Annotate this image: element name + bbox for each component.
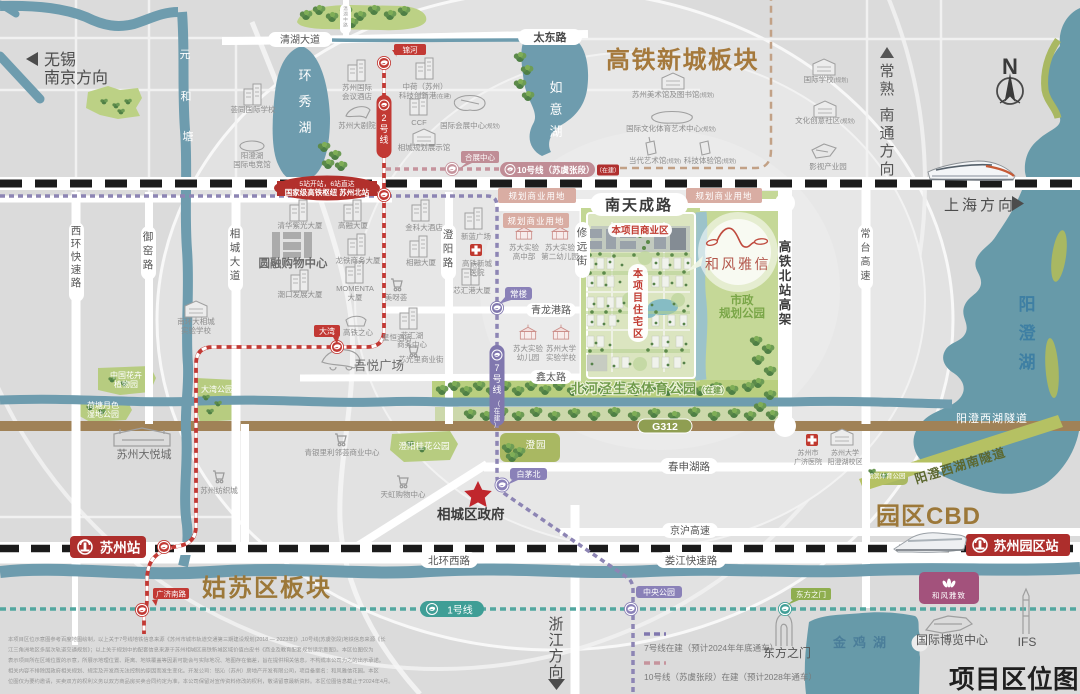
svg-text:阳澄湖: 阳澄湖 [1019,295,1037,372]
svg-text:东方之门: 东方之门 [796,589,826,599]
svg-text:姑苏区板块: 姑苏区板块 [202,575,332,602]
svg-text:苏州站: 苏州站 [100,540,141,556]
svg-text:清华紫光大厦: 清华紫光大厦 [278,220,323,230]
svg-text:和风雅致: 和风雅致 [932,590,966,600]
svg-text:金鸡湖: 金鸡湖 [832,635,893,650]
svg-text:高铁新城板块: 高铁新城板块 [606,46,759,74]
svg-text:京沪高速: 京沪高速 [670,524,710,537]
svg-text:南京方向: 南京方向 [44,69,108,87]
svg-text:园区CBD: 园区CBD [876,503,981,530]
svg-text:苏大实验第二幼儿园: 苏大实验第二幼儿园 [541,242,579,261]
svg-text:高融大厦: 高融大厦 [338,220,368,230]
svg-text:中国花卉植物园: 中国花卉植物园 [110,370,142,389]
svg-text:吾悦广场: 吾悦广场 [354,359,404,373]
svg-text:位图仅为要约邀请，买卖双方的权利义务以双方商品房买卖合同约定: 位图仅为要约邀请，买卖双方的权利义务以双方商品房买卖合同约定为准，本公司保留对宣… [8,677,394,685]
svg-text:清湖大道: 清湖大道 [280,33,320,46]
svg-text:北环西路: 北环西路 [428,554,470,567]
svg-text:相融大厦: 相融大厦 [406,257,436,267]
svg-text:荷塘月色湿地公园: 荷塘月色湿地公园 [87,400,119,419]
svg-text:相城规划展示馆: 相城规划展示馆 [398,142,451,152]
svg-text:规划商业用地: 规划商业用地 [508,191,565,201]
svg-text:太东路: 太东路 [533,30,568,44]
svg-text:影视产业园: 影视产业园 [809,161,847,171]
svg-text:澄阳路: 澄阳路 [443,228,454,269]
svg-text:表示项目所在区域位置的示意，所展示地理位置、距离、地铁覆盖等: 表示项目所在区域位置的示意，所展示地理位置、距离、地铁覆盖等因素可能会与实际地况… [8,656,384,664]
svg-text:5站开站，6站直达: 5站开站，6站直达 [299,179,354,188]
svg-text:10号线（苏虞张段）: 10号线（苏虞张段） [517,165,594,175]
svg-text:1号线: 1号线 [447,604,473,617]
svg-text:常楼: 常楼 [510,289,528,299]
svg-text:芯汇港大厦: 芯汇港大厦 [453,285,491,295]
svg-text:苏州大悦城: 苏州大悦城 [117,447,172,461]
svg-text:芯光里商业街: 芯光里商业街 [399,354,444,364]
svg-text:美呀荟: 美呀荟 [385,292,408,302]
svg-text:大湾公园: 大湾公园 [201,384,233,394]
svg-text:项目区位图: 项目区位图 [949,665,1079,694]
svg-text:新蓝广场: 新蓝广场 [461,231,491,241]
svg-text:（在建）: （在建） [494,400,501,429]
svg-text:御窑路: 御窑路 [143,230,154,271]
svg-text:春申湖路: 春申湖路 [668,460,710,473]
svg-text:苏大实验高中部: 苏大实验高中部 [509,242,539,261]
svg-text:中央公园: 中央公园 [643,587,675,597]
svg-text:龙铁商务大厦: 龙铁商务大厦 [336,255,381,265]
svg-text:娄江快速路: 娄江快速路 [665,554,718,567]
svg-text:常熟南通方向: 常熟南通方向 [879,63,894,178]
svg-text:江三角洲地区多层次轨道交通规划》；以上关于规划中的配套信息来: 江三角洲地区多层次轨道交通规划》；以上关于规划中的配套信息来源于苏州相城区高铁新… [8,646,374,654]
svg-text:如意湖: 如意湖 [549,80,562,139]
svg-text:上海方向: 上海方向 [944,197,1016,214]
svg-text:天虹购物中心: 天虹购物中心 [381,489,426,499]
svg-text:阳澄西湖隧道: 阳澄西湖隧道 [956,411,1028,425]
svg-text:浙江方向: 浙江方向 [548,616,563,681]
svg-text:荟同国际学校: 荟同国际学校 [231,104,276,114]
svg-text:10号线（苏虞张段）在建（预计2028年通车）: 10号线（苏虞张段）在建（预计2028年通车） [644,672,817,682]
svg-text:苏州纺织城: 苏州纺织城 [200,485,238,495]
svg-text:本项目商业区: 本项目商业区 [611,225,669,237]
svg-text:（在建）: （在建） [596,167,620,175]
svg-text:G312: G312 [652,421,678,433]
svg-text:高铁北站高架: 高铁北站高架 [778,239,792,327]
svg-text:苏州国际会议酒店: 苏州国际会议酒店 [342,82,372,101]
svg-text:青龙港路: 青龙港路 [531,304,571,317]
svg-text:潮口发展大厦: 潮口发展大厦 [278,289,323,299]
svg-text:相关内容不排除因政府相关规划、规定及开发商无法控制的原因而发: 相关内容不排除因政府相关规划、规定及开发商无法控制的原因而发生变化。开发公司：铭… [8,667,379,675]
svg-text:苏州园区站: 苏州园区站 [993,539,1058,554]
svg-text:苏州大剧院: 苏州大剧院 [338,120,376,130]
svg-text:湖滨体育公园: 湖滨体育公园 [867,471,906,480]
svg-text:锦河: 锦河 [403,45,418,55]
svg-text:苏州大学实验学校: 苏州大学实验学校 [546,343,576,362]
svg-text:苏大实验幼儿园: 苏大实验幼儿园 [513,343,543,362]
svg-text:规划商业用地: 规划商业用地 [695,191,752,201]
svg-text:星恒酒店: 星恒酒店 [382,332,412,342]
svg-text:白茅北: 白茅北 [517,469,541,479]
svg-text:高铁之心: 高铁之心 [343,327,373,337]
svg-text:广济南路: 广济南路 [156,589,186,599]
svg-text:国家级高铁枢纽 苏州北站: 国家级高铁枢纽 苏州北站 [285,187,370,197]
svg-text:东方之门: 东方之门 [763,645,811,660]
svg-text:规划商业用地: 规划商业用地 [507,216,564,226]
svg-text:CCF: CCF [411,118,427,127]
svg-text:大湾: 大湾 [319,326,335,336]
svg-text:本项目住宅区: 本项目住宅区 [633,267,644,340]
svg-text:西环快速路: 西环快速路 [71,225,82,289]
svg-text:IFS: IFS [1018,635,1037,649]
svg-text:相城区政府: 相城区政府 [437,506,505,522]
svg-text:中荷（苏州）科技创新港(在建): 中荷（苏州）科技创新港(在建) [399,81,451,100]
svg-text:无锡: 无锡 [44,51,76,69]
svg-text:合展中心: 合展中心 [465,152,495,162]
svg-text:和风雅信: 和风雅信 [705,256,771,272]
svg-text:青银里利邻荟商业中心: 青银里利邻荟商业中心 [305,447,380,457]
svg-text:南天成路: 南天成路 [605,196,673,214]
svg-text:7号线在建（预计2024年年底通车）: 7号线在建（预计2024年年底通车） [644,643,778,653]
svg-text:环秀湖: 环秀湖 [298,68,311,135]
svg-text:国际博览中心: 国际博览中心 [916,632,988,647]
svg-text:鑫太路: 鑫太路 [536,371,566,384]
svg-text:本项目区位示意图参考百度地图绘制，以上关于7号线地铁信息来源: 本项目区位示意图参考百度地图绘制，以上关于7号线地铁信息来源《苏州市城市轨道交通… [8,635,386,643]
svg-text:南环大相城实验学校: 南环大相城实验学校 [177,316,215,335]
svg-text:温湖中路: 温湖中路 [343,5,348,29]
svg-text:金科大酒店: 金科大酒店 [405,222,443,232]
svg-text:澄园: 澄园 [525,439,546,451]
svg-text:圆融购物中心: 圆融购物中心 [259,256,328,270]
svg-text:澄阳桂花公园: 澄阳桂花公园 [398,441,449,451]
